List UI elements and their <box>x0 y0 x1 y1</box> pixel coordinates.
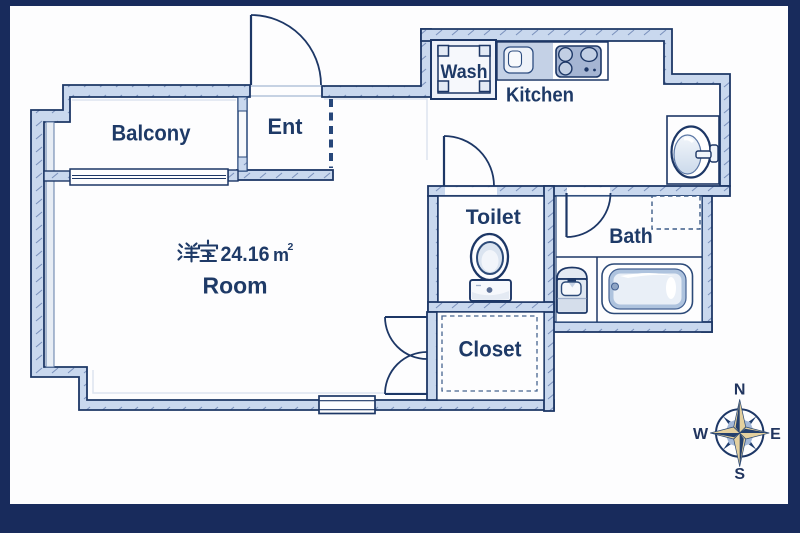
svg-text:E: E <box>770 426 781 443</box>
svg-text:Kitchen: Kitchen <box>506 84 574 107</box>
svg-text:S: S <box>734 466 745 483</box>
svg-text:Wash: Wash <box>441 62 488 83</box>
svg-text:Room: Room <box>203 273 268 299</box>
svg-text:Ent: Ent <box>268 114 304 139</box>
svg-text:Balcony: Balcony <box>112 121 191 146</box>
svg-text:Closet: Closet <box>459 337 523 362</box>
svg-text:N: N <box>734 382 746 399</box>
svg-text:24.16: 24.16 <box>221 242 270 266</box>
svg-text:W: W <box>693 426 709 443</box>
svg-text:2: 2 <box>288 241 294 253</box>
svg-text:Bath: Bath <box>609 224 653 248</box>
svg-text:Toilet: Toilet <box>466 205 521 229</box>
